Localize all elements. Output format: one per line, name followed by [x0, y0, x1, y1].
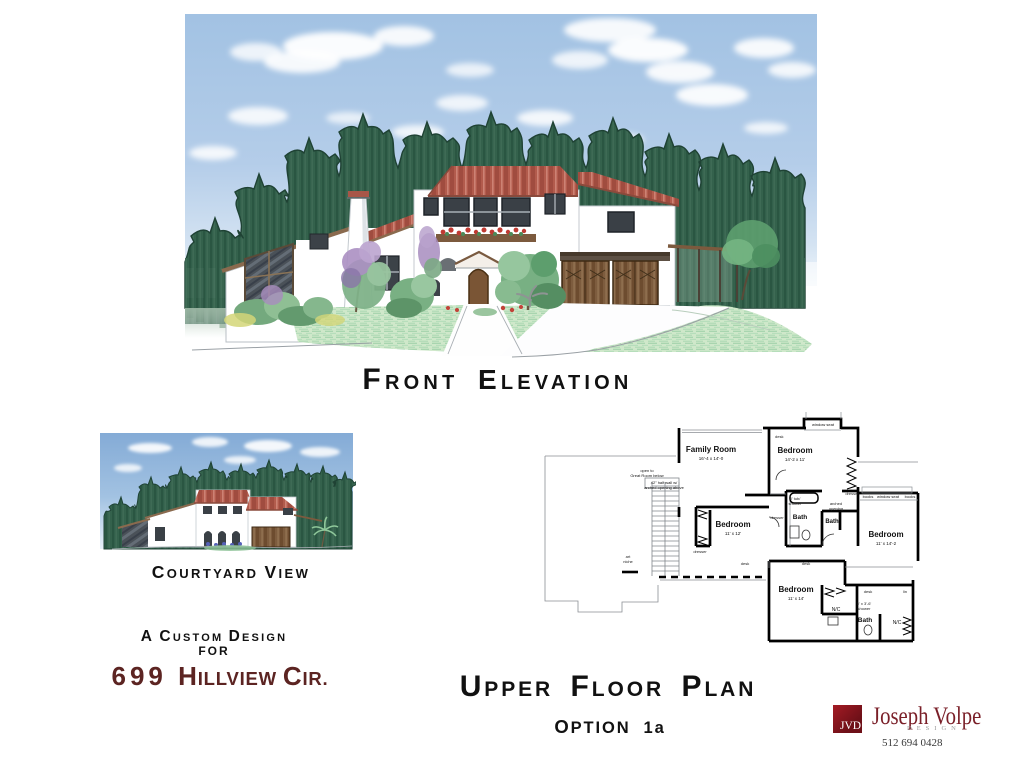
- svg-text:14'-2 x 11': 14'-2 x 11': [785, 457, 805, 462]
- svg-text:desk: desk: [775, 434, 783, 439]
- svg-text:Great Room below: Great Room below: [630, 473, 663, 478]
- svg-text:niche: niche: [623, 559, 633, 564]
- svg-text:Bedroom: Bedroom: [715, 520, 750, 529]
- svg-text:Bedroom: Bedroom: [868, 530, 903, 539]
- svg-text:window seat: window seat: [877, 494, 900, 499]
- svg-text:11' x 12': 11' x 12': [725, 531, 741, 536]
- svg-text:dresser: dresser: [693, 549, 707, 554]
- svg-text:dresser: dresser: [845, 491, 859, 496]
- svg-text:Family Room: Family Room: [686, 445, 736, 454]
- svg-text:dresser: dresser: [770, 515, 784, 520]
- svg-text:shower: shower: [858, 606, 872, 611]
- svg-text:desk: desk: [864, 589, 872, 594]
- svg-text:11' x 14': 11' x 14': [788, 596, 804, 601]
- svg-text:Bath: Bath: [793, 514, 807, 521]
- svg-text:books: books: [905, 494, 916, 499]
- svg-text:11' x 14'-2: 11' x 14'-2: [876, 541, 897, 546]
- svg-text:N/C: N/C: [893, 620, 902, 626]
- svg-text:window seat: window seat: [812, 422, 835, 427]
- svg-text:Bath: Bath: [825, 519, 839, 525]
- svg-text:16'-4 x 14'-0: 16'-4 x 14'-0: [699, 456, 724, 461]
- svg-text:Bedroom: Bedroom: [778, 585, 813, 594]
- svg-text:lin: lin: [903, 589, 907, 594]
- svg-text:Bedroom: Bedroom: [777, 446, 812, 455]
- svg-text:books: books: [863, 494, 874, 499]
- svg-text:shower: shower: [789, 501, 803, 506]
- svg-text:Bath: Bath: [858, 617, 872, 624]
- svg-text:desk: desk: [741, 561, 749, 566]
- svg-text:opening: opening: [829, 506, 843, 511]
- svg-text:N/C: N/C: [832, 607, 841, 613]
- svg-text:desk: desk: [802, 561, 810, 566]
- svg-text:arched opening above: arched opening above: [644, 485, 684, 490]
